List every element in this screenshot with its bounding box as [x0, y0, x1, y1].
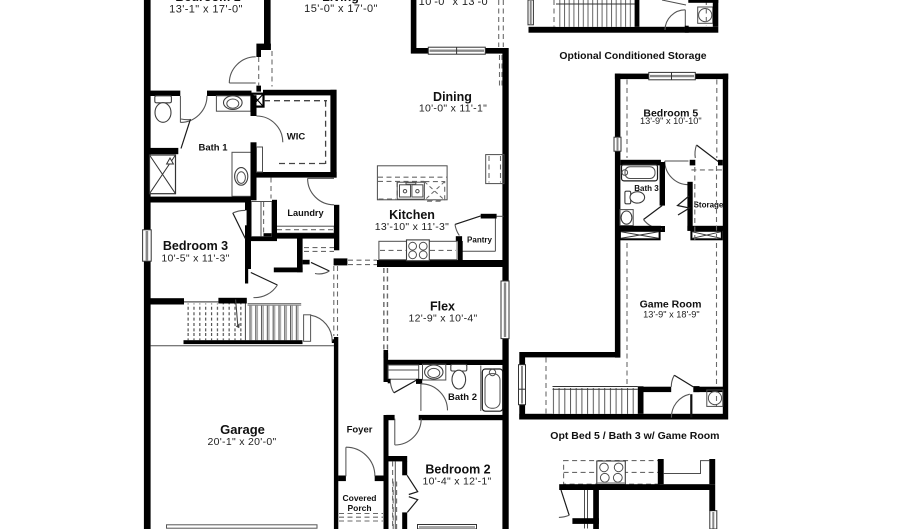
svg-text:Garage: Garage	[220, 422, 265, 437]
svg-text:Pantry: Pantry	[467, 236, 492, 245]
svg-text:Foyer: Foyer	[347, 425, 373, 436]
svg-text:Storage: Storage	[694, 201, 724, 210]
svg-text:Bedroom 3: Bedroom 3	[163, 239, 228, 253]
svg-text:Flex: Flex	[430, 300, 455, 314]
svg-text:13'-10" x 11'-3": 13'-10" x 11'-3"	[375, 221, 449, 233]
svg-text:Covered: Covered	[342, 493, 376, 503]
svg-text:13'-9" x 18'-9": 13'-9" x 18'-9"	[643, 310, 700, 320]
svg-text:Bath 1: Bath 1	[198, 143, 228, 154]
svg-text:Bath 2: Bath 2	[448, 392, 477, 403]
svg-text:Bedroom 2: Bedroom 2	[425, 463, 490, 477]
svg-text:10'-0" x 13'-0": 10'-0" x 13'-0"	[419, 0, 493, 8]
svg-text:Optional Conditioned Storage: Optional Conditioned Storage	[559, 51, 706, 62]
svg-text:Opt Bed 5 / Bath 3 w/ Game Roo: Opt Bed 5 / Bath 3 w/ Game Room	[550, 430, 719, 442]
svg-text:Porch: Porch	[347, 503, 371, 513]
svg-text:13'-1" x 17'-0": 13'-1" x 17'-0"	[169, 4, 243, 16]
svg-text:Laundry: Laundry	[287, 208, 324, 218]
svg-text:10'-5" x 11'-3": 10'-5" x 11'-3"	[161, 253, 229, 265]
svg-text:10'-4" x 12'-1": 10'-4" x 12'-1"	[422, 476, 491, 488]
svg-text:20'-1" x 20'-0": 20'-1" x 20'-0"	[207, 436, 276, 448]
svg-text:10'-0" x 11'-1": 10'-0" x 11'-1"	[419, 103, 487, 115]
svg-text:15'-0" x 17'-0": 15'-0" x 17'-0"	[304, 3, 378, 15]
svg-text:WIC: WIC	[287, 132, 306, 143]
svg-text:12'-9" x 10'-4": 12'-9" x 10'-4"	[408, 313, 477, 325]
svg-text:Kitchen: Kitchen	[389, 208, 435, 222]
svg-text:13'-9" x 10'-10": 13'-9" x 10'-10"	[640, 116, 702, 126]
